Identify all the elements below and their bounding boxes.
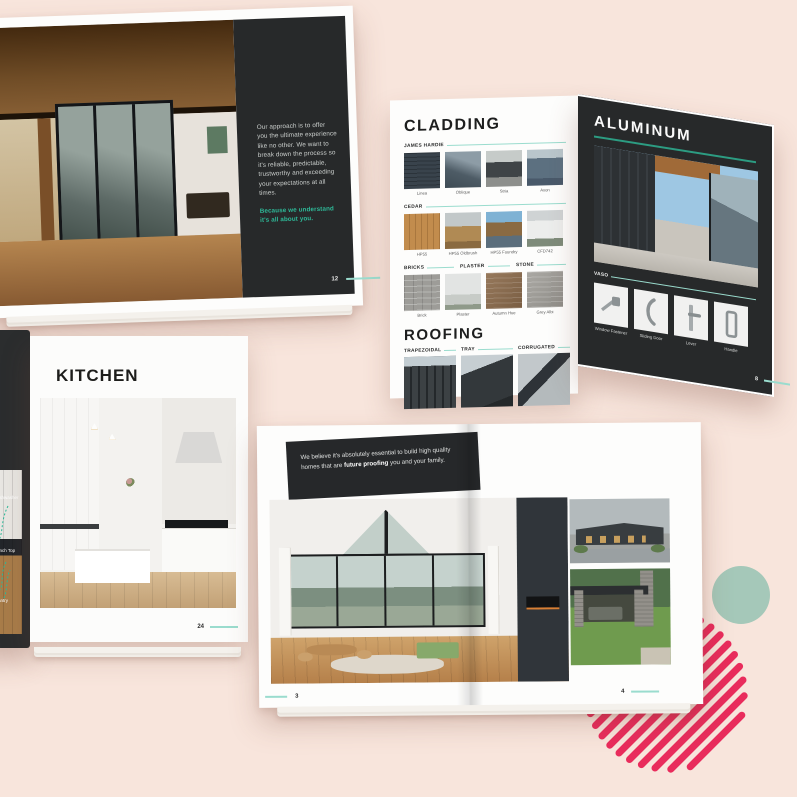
callout-pantry: Pantry — [0, 598, 8, 603]
swatch: Brick — [404, 274, 440, 319]
spread-approach: Our approach is to offer you the ultimat… — [0, 6, 363, 319]
gable-window — [341, 509, 431, 556]
poster-canvas: Our approach is to offer you the ultimat… — [0, 0, 797, 797]
swatch: HP55 Foundry — [486, 211, 522, 256]
page-number-4: 4 — [621, 689, 624, 695]
shrub — [651, 544, 665, 552]
roof-image-trapezoidal — [404, 356, 456, 409]
kitchen-right-page: KITCHEN 24 — [30, 336, 248, 642]
cooktop — [165, 520, 228, 528]
hardware-item: Lever — [674, 295, 708, 348]
swatch: Plaster — [445, 273, 481, 318]
james-hardie-header: JAMES HARDIE — [404, 140, 566, 149]
swatch-image-brick — [404, 274, 440, 311]
approach-text-page: Our approach is to offer you the ultimat… — [233, 16, 355, 298]
kitchen-left-page: Dishwasher Bench Top Pantry — [0, 330, 30, 648]
spread-future-sheet: We believe it's absolutely essential to … — [257, 422, 703, 708]
spread-kitchen: Dishwasher Bench Top Pantry KITCHEN 24 — [0, 330, 250, 648]
curtain — [279, 547, 292, 635]
masonry-headers: BRICKS PLASTER STONE — [404, 262, 566, 271]
spread-materials: CLADDING JAMES HARDIE Linea Oblique Stri… — [390, 92, 778, 422]
hardware-item: Window Fastener — [594, 283, 628, 336]
roof-image-corrugated — [518, 353, 570, 406]
green-sofa — [417, 642, 459, 659]
spread-approach-sheet: Our approach is to offer you the ultimat… — [0, 6, 363, 319]
shrub — [574, 545, 588, 553]
window-wall — [288, 553, 485, 628]
stone-pillar — [634, 590, 643, 627]
lit-windows — [586, 536, 646, 543]
page-number-24: 24 — [197, 624, 204, 630]
firebox — [527, 597, 560, 610]
swatch-image-oldbrush — [445, 212, 481, 249]
swatch: Grey Albi — [527, 271, 563, 316]
roofing-item: TRAY — [461, 346, 513, 407]
pendant-light — [109, 434, 116, 440]
flower-vase — [126, 478, 135, 487]
swatch: HP55 Oldbrush — [445, 212, 481, 257]
fireplace-wall — [517, 497, 569, 681]
page-number-line — [346, 277, 380, 280]
swatch: Oblique — [445, 151, 481, 196]
kitchen-photo — [40, 398, 236, 608]
house-exterior-photo — [569, 498, 670, 563]
swatch-image-oblique — [445, 151, 481, 188]
left-cabinets — [40, 398, 99, 570]
section-line — [447, 142, 566, 147]
dining-table — [186, 192, 230, 218]
roofing-item: CORRUGATED — [518, 345, 570, 406]
swatch-image-autumn-hue — [486, 272, 522, 309]
living-room-photo — [0, 20, 243, 307]
swatch-image-linea — [404, 152, 440, 189]
roofing-title: ROOFING — [404, 323, 566, 344]
page-number-line — [631, 690, 659, 692]
callout-bench-top: Bench Top — [0, 548, 15, 553]
aluminum-page: ALUMINUM VASO Window Fastener — [578, 94, 774, 397]
section-line — [426, 203, 566, 208]
lever-handle-image — [674, 295, 708, 340]
swatch: HP55 — [404, 213, 440, 258]
quote-text: We believe it's absolutely essential to … — [300, 445, 465, 473]
island-bench — [75, 549, 149, 583]
cedar-swatches: HP55 HP55 Oldbrush HP55 Foundry CFD742 — [404, 210, 566, 258]
swatch-image-cfd742 — [527, 210, 563, 247]
swatch-image-grey-albi — [527, 271, 563, 308]
page-number-3: 3 — [295, 694, 298, 700]
quote-bold: future proofing — [344, 459, 389, 468]
glass-doors — [709, 173, 758, 269]
swatch-image-hp55 — [404, 213, 440, 250]
sliding-doors — [54, 100, 177, 246]
right-cabinets — [162, 528, 236, 574]
page-number-line — [265, 696, 287, 698]
page-number-line — [764, 379, 790, 385]
page-number-8: 8 — [755, 376, 758, 382]
hardware-item: Handle — [714, 302, 748, 355]
roofing-swatches: TRAPEZOIDAL TRAY CORRUGATED — [404, 345, 566, 409]
outdoor-sofa — [588, 607, 622, 620]
spread-future: We believe it's absolutely essential to … — [257, 422, 703, 708]
sage-circle-decor — [712, 566, 770, 624]
swatch-image-stria — [486, 150, 522, 187]
roof-image-tray — [461, 354, 513, 407]
masonry-swatches: Brick Plaster Autumn Hue Grey Albi — [404, 271, 566, 319]
stone-pillar — [574, 590, 583, 627]
wall-art — [207, 126, 228, 154]
aluminum-cladding — [594, 146, 655, 255]
james-hardie-swatches: Linea Oblique Stria Axon — [404, 149, 566, 197]
roofing-item: TRAPEZOIDAL — [404, 348, 456, 409]
window-fastener-image — [594, 283, 628, 328]
swatch: Stria — [486, 150, 522, 195]
wood-deck — [0, 234, 243, 307]
swatch: CFD742 — [527, 210, 563, 255]
swatch-image-plaster — [445, 273, 481, 310]
chair — [298, 652, 313, 661]
page-number-12: 12 — [331, 276, 338, 282]
cladding-title: CLADDING — [404, 114, 566, 136]
left-bench — [40, 524, 99, 529]
quote-box: We believe it's absolutely essential to … — [286, 432, 481, 500]
cladding-page: CLADDING JAMES HARDIE Linea Oblique Stri… — [390, 96, 578, 399]
bricks-label: BRICKS — [404, 266, 424, 272]
aluminum-photo — [594, 146, 758, 288]
callout-dishwasher: Dishwasher — [0, 495, 19, 500]
swatch: Autumn Hue — [486, 272, 522, 317]
swatch: Linea — [404, 152, 440, 197]
swatch-image-axon — [527, 149, 563, 186]
garden-path — [641, 647, 671, 665]
approach-highlight-text: Because we understand it's all about you… — [260, 204, 341, 226]
swatch: Axon — [527, 149, 563, 194]
cedar-header: CEDAR — [404, 201, 566, 210]
stone-label: STONE — [516, 263, 534, 268]
page-stack-edge — [34, 647, 241, 653]
plaster-label: PLASTER — [460, 264, 485, 270]
approach-body-text: Our approach is to offer you the ultimat… — [257, 120, 340, 198]
pull-handle-image — [714, 302, 748, 347]
hardware-item: Sliding Door — [634, 289, 668, 342]
living-interior-photo — [269, 497, 569, 684]
kitchen-title: KITCHEN — [56, 366, 139, 386]
sliding-door-handle-image — [634, 289, 668, 334]
pavilion-photo — [570, 568, 671, 665]
swatch-image-foundry — [486, 211, 522, 248]
page-number-line — [210, 626, 238, 628]
curtain — [487, 546, 500, 634]
